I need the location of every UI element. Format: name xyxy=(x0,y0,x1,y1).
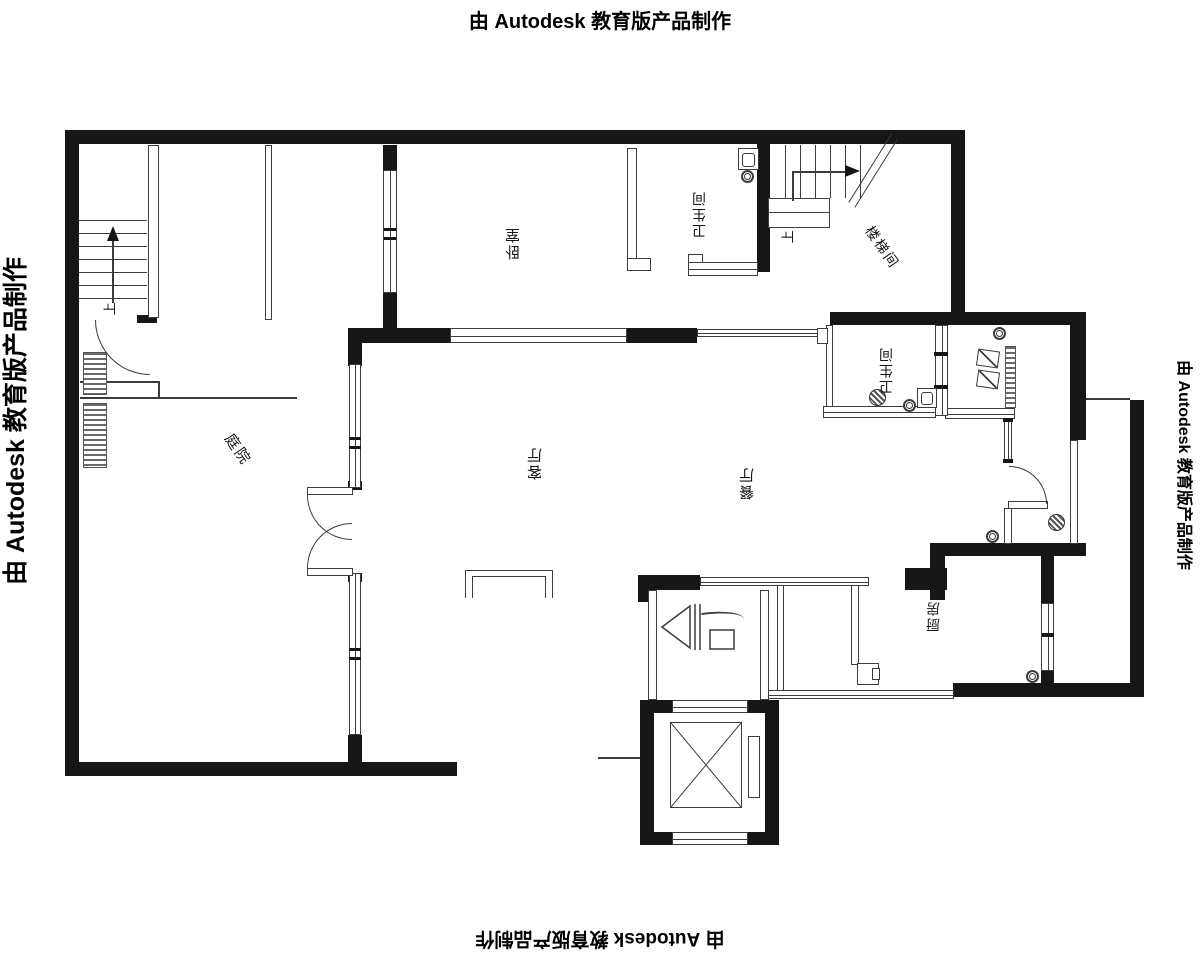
partition-step xyxy=(688,254,703,263)
corridor-bottom-wall xyxy=(768,690,954,699)
lobby-left-wall xyxy=(648,590,657,700)
stair-arrow-up-icon xyxy=(107,226,119,241)
window-bedroom-left xyxy=(383,170,397,293)
stair-arrow-line xyxy=(792,171,794,201)
window-sash xyxy=(349,437,361,440)
balcony-cap-line xyxy=(1086,398,1130,400)
floor-drain-icon xyxy=(986,530,999,543)
radiator xyxy=(1005,346,1016,408)
wall-foot xyxy=(627,258,651,271)
elevator-x-icon xyxy=(671,723,741,807)
watermark-right: 由 Autodesk 教育版产品制作 xyxy=(1174,331,1198,599)
door-leaf xyxy=(307,487,353,495)
toilet-bowl xyxy=(921,392,933,405)
wall-tick xyxy=(598,757,640,759)
window-corridor xyxy=(1004,420,1012,463)
cabinet xyxy=(976,349,1000,369)
elevator-car xyxy=(670,722,742,808)
elevator-wall-left xyxy=(640,700,654,845)
room-label-bathroom-top: 卫生间 xyxy=(690,190,709,238)
corridor-wall xyxy=(1004,508,1012,544)
entry-door-symbol xyxy=(658,602,750,654)
door-swing-arc xyxy=(307,523,352,568)
stairs-up-label-left: 上 xyxy=(102,302,120,315)
wall-segment xyxy=(383,293,397,330)
wall-segment xyxy=(627,328,697,343)
wall-segment xyxy=(905,568,947,590)
stairs-up-label-right: 上 xyxy=(780,230,798,243)
wall-left xyxy=(65,130,79,776)
stair-arrow-line xyxy=(112,240,114,303)
window-sash xyxy=(349,446,361,449)
elevator-door-top xyxy=(672,700,748,713)
wall-stairwell-right xyxy=(951,130,965,325)
floor-feature-inner xyxy=(472,576,546,598)
window-cap xyxy=(1003,459,1013,463)
window-sash xyxy=(349,648,361,651)
corridor-top-wall xyxy=(700,577,869,586)
stair-stringer-wall xyxy=(148,145,159,318)
room-label-living-room: 客厅 xyxy=(526,446,546,480)
step-line xyxy=(158,381,160,399)
elevator-door-bottom xyxy=(672,832,748,845)
floor-drain-icon xyxy=(741,170,754,183)
wall-kitchen-top xyxy=(930,543,1086,556)
stair-down-hatch xyxy=(83,352,107,395)
pipe-shaft xyxy=(817,328,828,344)
wall-closet-right xyxy=(1070,312,1086,440)
wall-right-block-top xyxy=(830,312,1086,325)
window-sash xyxy=(934,352,948,356)
cabinet xyxy=(976,370,1000,390)
elevator-wall-segment xyxy=(748,700,779,713)
room-label-kitchen: 厨房 xyxy=(924,600,943,632)
thin-wall xyxy=(697,329,830,337)
corridor-right-wall xyxy=(1070,440,1078,544)
corridor-wall xyxy=(777,585,784,691)
window-sash xyxy=(384,228,396,231)
watermark-bottom: 由 Autodesk 教育版产品制作 xyxy=(475,927,724,954)
kitchen-door-frame-inner xyxy=(872,668,880,680)
wall-segment xyxy=(1041,556,1054,605)
bathroom-partition xyxy=(688,262,758,276)
toilet-bowl xyxy=(742,153,755,167)
lobby-right-wall xyxy=(760,590,769,700)
wall-bottom-left xyxy=(65,762,457,776)
window-sash xyxy=(384,237,396,240)
elevator-counterweight xyxy=(748,736,760,798)
elevator-wall-segment xyxy=(748,832,779,845)
floor-plan-canvas: 由 Autodesk 教育版产品制作 由 Autodesk 教育版产品制作 由 … xyxy=(0,0,1200,960)
door-leaf xyxy=(307,568,353,576)
kitchen-left-wall xyxy=(851,585,859,665)
stair-landing xyxy=(768,198,830,228)
room-label-courtyard: 庭院 xyxy=(219,430,255,469)
wall-kitchen-bottom xyxy=(953,683,1144,697)
stair-arrow-right-icon xyxy=(845,165,860,177)
column-icon xyxy=(1048,514,1065,531)
room-label-dining-room: 餐厅 xyxy=(738,466,758,500)
wall-top xyxy=(65,130,965,144)
elevator-wall-segment xyxy=(640,700,672,713)
elevator-wall-right xyxy=(765,700,779,845)
stair-down-hatch xyxy=(83,403,107,468)
window-courtyard-lower xyxy=(349,573,361,735)
wall-outer-right xyxy=(1130,400,1144,697)
watermark-top: 由 Autodesk 教育版产品制作 xyxy=(469,5,731,34)
bedroom-partial-wall xyxy=(627,148,637,260)
wall-segment xyxy=(348,735,362,762)
floor-drain-icon xyxy=(1026,670,1039,683)
elevator-wall-segment xyxy=(640,832,672,845)
wall-segment xyxy=(348,328,450,343)
floor-drain-icon xyxy=(903,399,916,412)
stair-hall-wall xyxy=(265,145,272,320)
window-sash xyxy=(1042,633,1054,637)
room-label-bathroom-right: 卫生间 xyxy=(877,346,896,394)
stair-landing-tread xyxy=(768,212,830,213)
window-courtyard-upper xyxy=(349,364,361,488)
door-swing-arc xyxy=(1009,466,1047,504)
window-bedroom-bottom xyxy=(450,328,627,343)
wall-segment xyxy=(383,145,397,172)
floor-drain-icon xyxy=(993,327,1006,340)
watermark-left: 由 Autodesk 教育版产品制作 xyxy=(0,211,32,631)
window-cap xyxy=(1003,418,1013,422)
room-label-bedroom: 卧室 xyxy=(504,226,524,260)
window-kitchen xyxy=(1041,603,1054,671)
room-label-stairwell: 楼梯间 xyxy=(860,222,903,272)
window-sash xyxy=(349,657,361,660)
stair-arrow-line xyxy=(793,171,847,173)
step-line xyxy=(80,397,297,399)
